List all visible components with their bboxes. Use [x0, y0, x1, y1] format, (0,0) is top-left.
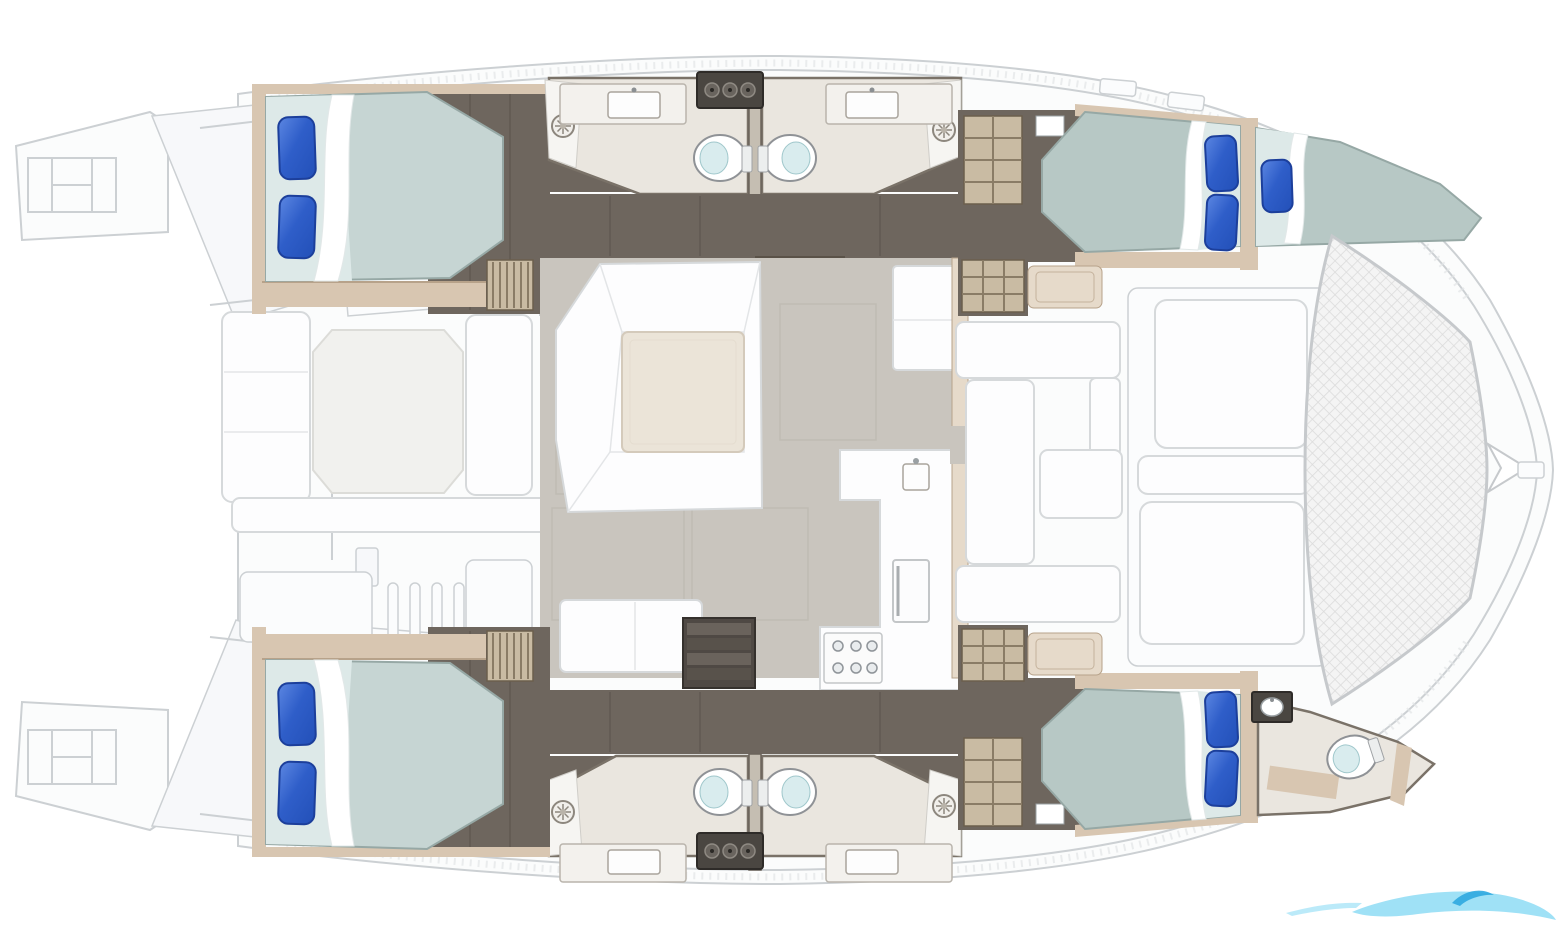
stove-icon — [824, 633, 882, 683]
locker-grid — [962, 629, 1024, 681]
cabin-wall — [1075, 252, 1240, 268]
faucet-icon — [632, 88, 637, 93]
vanity-panel — [1252, 692, 1292, 722]
shower-head-icon — [933, 795, 955, 817]
sunpad — [1140, 502, 1304, 644]
nav-cabinet — [893, 266, 959, 370]
cockpit-bench-left — [222, 312, 310, 502]
heads-port — [545, 72, 961, 196]
watermark-logo — [1286, 891, 1556, 920]
bed-platform — [262, 634, 486, 659]
deck-hatch — [1099, 78, 1136, 96]
double-bed — [1042, 112, 1240, 252]
locker-shelves — [964, 116, 1022, 204]
chaise-fin — [388, 583, 398, 641]
locker-shelves — [964, 738, 1022, 826]
saloon-galley — [540, 258, 970, 690]
faucet-icon — [913, 458, 919, 464]
aft-counter — [560, 600, 702, 672]
deck-hatch-panel — [697, 72, 763, 108]
deck-hatch — [1036, 116, 1064, 136]
saloon-table — [622, 332, 744, 452]
cabin-wall — [1075, 673, 1240, 689]
cockpit-table-fwd — [1040, 450, 1122, 518]
cockpit-seat-right — [1090, 378, 1120, 456]
pillow — [1205, 135, 1239, 192]
washbasin — [846, 92, 898, 118]
cockpit-seat-left — [966, 380, 1034, 564]
pillow — [1205, 750, 1239, 807]
galley-sink — [903, 464, 929, 490]
v-berth — [1256, 128, 1481, 246]
pillow — [1205, 691, 1239, 748]
chaise-fin — [410, 583, 420, 641]
cockpit-seat-back — [956, 322, 1120, 378]
cabin-wall — [252, 627, 266, 857]
watermark-wave — [1352, 892, 1556, 920]
cockpit-table — [313, 330, 463, 493]
watermark-wave — [1286, 903, 1362, 916]
pillow — [1261, 159, 1293, 212]
companionway-grate — [487, 260, 533, 310]
fridge-icon — [893, 560, 929, 622]
pillow — [278, 761, 316, 824]
bed-platform — [262, 282, 486, 307]
companionway-grate — [487, 631, 533, 681]
faucet-icon — [870, 88, 875, 93]
washbasin — [846, 850, 898, 874]
deck-hatch-panel — [697, 833, 763, 869]
washbasin — [608, 92, 660, 118]
washbasin — [608, 850, 660, 874]
locker-grid — [962, 260, 1024, 312]
double-bed — [266, 92, 503, 281]
cockpit-seat-front — [956, 566, 1120, 622]
cabin-wall — [252, 84, 266, 314]
companionway-stairs-dark — [683, 618, 755, 688]
pillow — [278, 195, 316, 258]
double-bed — [266, 660, 503, 849]
floorplan-stage — [0, 0, 1560, 941]
trampoline — [1305, 236, 1544, 704]
corridor-floor — [549, 194, 961, 258]
sunpad — [1138, 456, 1310, 494]
pillow — [1205, 194, 1239, 251]
pillow — [278, 682, 316, 745]
shower-head-icon — [552, 801, 574, 823]
cockpit-bench-right — [466, 315, 532, 495]
anchor-roller — [1518, 462, 1544, 478]
cabin-aft-port — [252, 84, 550, 314]
catamaran-floorplan — [0, 0, 1560, 941]
double-bed — [1042, 689, 1240, 829]
sunpad — [1155, 300, 1307, 448]
cabin-fore-port — [1042, 78, 1481, 270]
pillow — [278, 116, 316, 179]
cabin-aft-starboard — [252, 627, 550, 857]
deck-hatch — [1036, 804, 1064, 824]
corridor-floor — [549, 690, 961, 754]
cockpit-bench-aft — [232, 498, 550, 532]
